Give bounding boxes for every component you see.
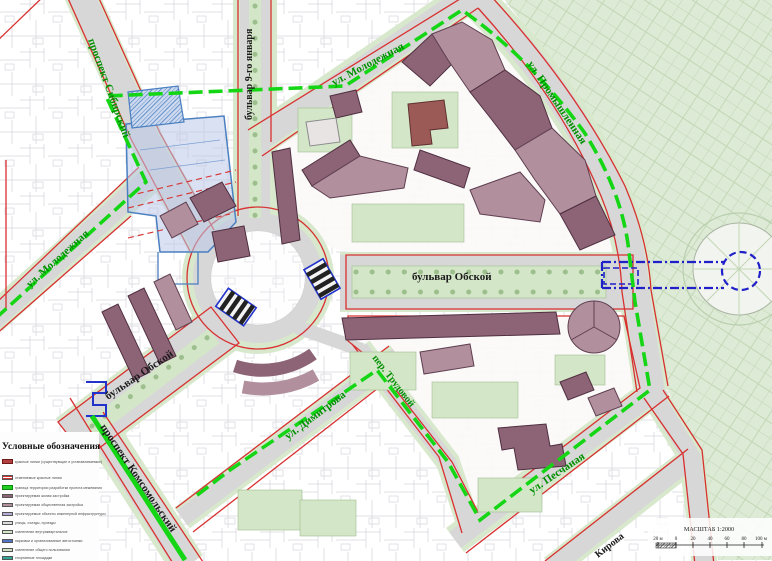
legend-item: проектируемая общественная застройка [2, 503, 83, 507]
legend-panel: Условные обозначения красные линии (суще… [0, 432, 99, 561]
scale-tick-label: 80 [742, 537, 748, 542]
legend-item: спортивные площадки [2, 556, 52, 560]
scale-tick-label: 40 [708, 537, 714, 542]
legend-swatch-red-lines [2, 459, 13, 464]
legend-swatch-parking [2, 539, 13, 543]
scale-bar: МАСШТАБ 1:2000 20 м 0 20 40 60 80 100 м [648, 518, 772, 556]
legend-item: парковки и организованные автостоянки [2, 539, 83, 543]
round-building [568, 301, 620, 353]
street-label-obskoy-right: бульвар Обской [412, 271, 492, 283]
legend-item: проектируемая жилая застройка [2, 494, 69, 498]
street-label-boulevard-9: бульвар 9-го января [244, 28, 255, 120]
legend-item: граница территории разработки проекта ме… [2, 485, 102, 490]
legend-swatch-sports [2, 556, 13, 560]
legend-swatch-residential [2, 494, 13, 498]
legend-swatch-public [2, 503, 13, 507]
legend-title: Условные обозначения [2, 442, 100, 452]
scale-title: МАСШТАБ 1:2000 [684, 526, 734, 533]
scale-tick-label: 20 [691, 537, 697, 542]
legend-item: отменяемые красные линии [2, 475, 62, 480]
legend-item: красные линии (существующие и устанавлив… [2, 459, 102, 464]
scale-tick-label: 60 [725, 537, 731, 542]
legend-swatch-greenery [2, 530, 13, 534]
legend-item: озеленение общего пользования [2, 548, 70, 552]
legend-item: улицы, съезды, проезды [2, 521, 56, 525]
master-plan-map: проспект Сибирский ул. Молодежная бульва… [0, 0, 772, 561]
legend-swatch-engineering [2, 512, 13, 516]
legend-item: проектируемые объекты инженерной инфраст… [2, 512, 106, 516]
legend-swatch-cancelled-red-lines [2, 475, 13, 480]
map-canvas: проспект Сибирский ул. Молодежная бульва… [0, 0, 772, 561]
scale-tick-label: 20 м [653, 537, 663, 542]
legend-swatch-public-greenery [2, 548, 13, 552]
legend-swatch-streets [2, 521, 13, 525]
scale-tick-label: 100 м [755, 537, 768, 542]
legend-swatch-boundary [2, 485, 13, 490]
legend-item: озеленение внутриквартальное [2, 530, 68, 534]
